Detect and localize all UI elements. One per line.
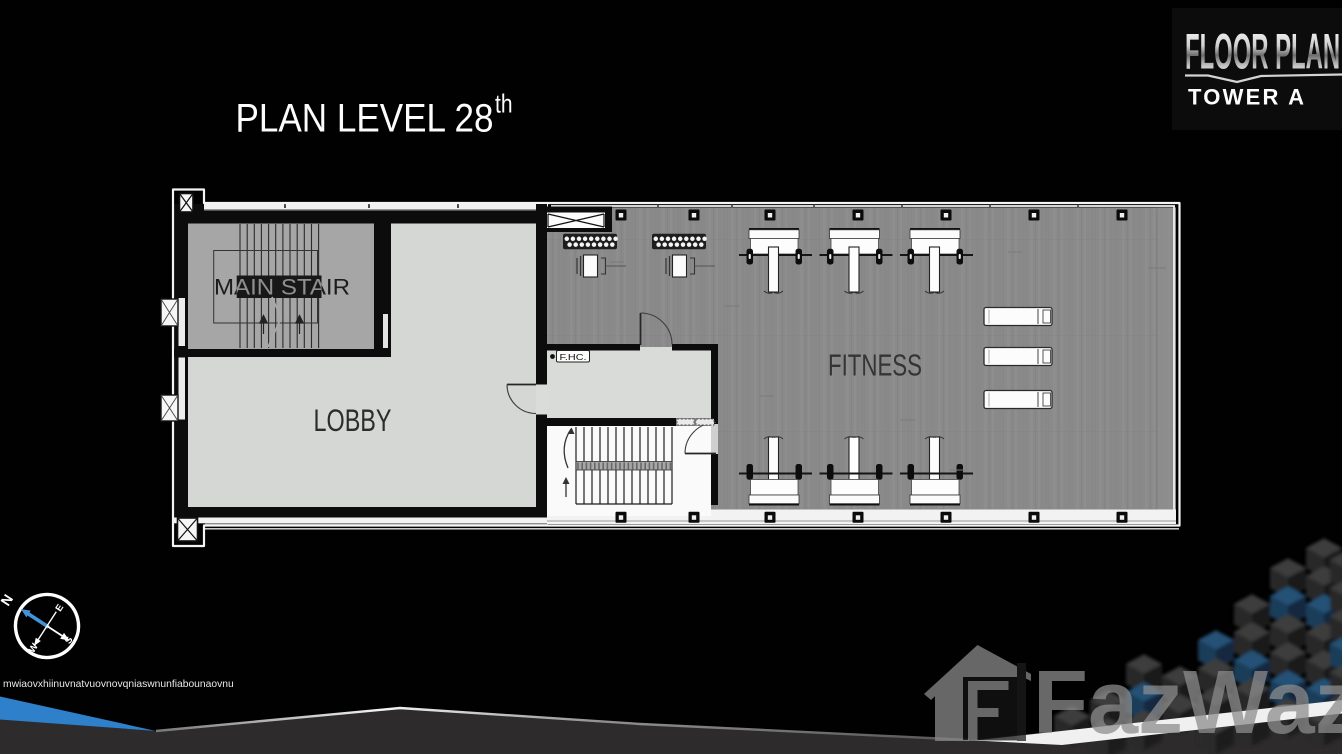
svg-text:FLOOR PLAN: FLOOR PLAN bbox=[1185, 25, 1340, 80]
svg-text:PLAN LEVEL 28: PLAN LEVEL 28 bbox=[236, 97, 494, 141]
svg-text:FazWaz: FazWaz bbox=[1033, 653, 1342, 753]
svg-text:mwiaovxhiinuvnatvuovnovqniaswn: mwiaovxhiinuvnatvuovnovqniaswnunfiabouna… bbox=[3, 679, 234, 690]
svg-text:FITNESS: FITNESS bbox=[828, 348, 922, 383]
svg-text:th: th bbox=[495, 89, 513, 119]
svg-text:F.HC.: F.HC. bbox=[560, 353, 587, 362]
svg-text:LOBBY: LOBBY bbox=[314, 402, 392, 438]
